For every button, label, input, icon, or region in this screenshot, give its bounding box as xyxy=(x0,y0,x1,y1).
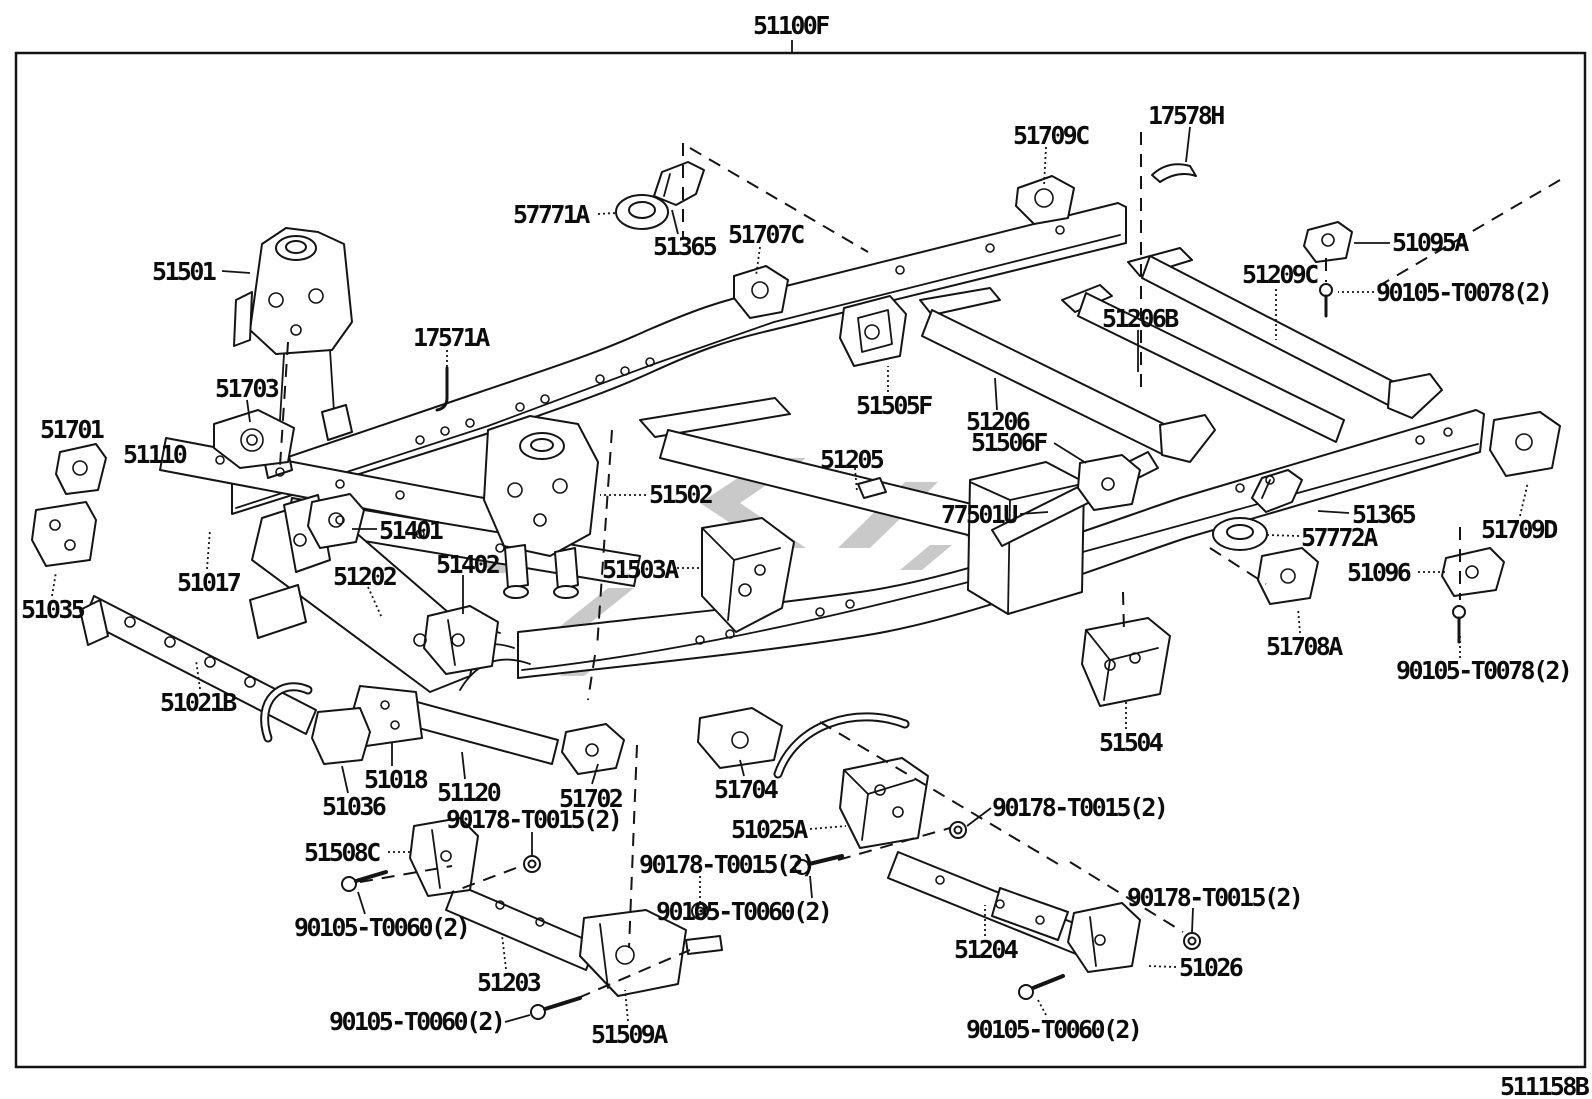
bracket-51506F xyxy=(1078,455,1140,510)
nut-90178-3 xyxy=(950,822,966,838)
part-label-51505F-12: 51505F xyxy=(856,393,931,418)
plate-51036 xyxy=(312,708,370,764)
part-label-51365-3: 51365 xyxy=(653,234,715,259)
bracket-51096 xyxy=(1442,548,1504,596)
part-label-51503A-26: 51503A xyxy=(602,557,677,582)
clip-51365-top xyxy=(654,162,704,205)
part-label-51704-37: 51704 xyxy=(714,777,776,802)
crossmember-box-end xyxy=(968,462,1084,614)
bracket-51504 xyxy=(1082,618,1170,706)
part-label-77501U-20: 77501U xyxy=(941,502,1016,527)
part-label-17571A-10: 17571A xyxy=(413,325,488,350)
bracket-51035 xyxy=(32,502,96,566)
part-label-51120-35: 51120 xyxy=(437,780,499,805)
part-label-51021B-32: 51021B xyxy=(160,690,235,715)
part-label-51401-19: 51401 xyxy=(379,518,441,543)
bracket-51708A xyxy=(1258,548,1318,604)
grommet-57771A xyxy=(616,195,668,229)
part-label-51026-48: 51026 xyxy=(1179,955,1241,980)
part-label-51502-18: 51502 xyxy=(649,482,711,507)
part-label-51017-24: 51017 xyxy=(177,570,239,595)
part-label-51203-49: 51203 xyxy=(477,970,539,995)
bracket-51025A xyxy=(840,758,928,848)
bolt-90105-T0060-br xyxy=(1019,985,1033,999)
part-label-90105-T00602-46: 90105-T0060(2) xyxy=(294,915,468,940)
part-label-90105-T00782-7: 90105-T0078(2) xyxy=(1376,280,1550,305)
hook-17578H xyxy=(1152,164,1196,182)
rod-17571A xyxy=(437,368,447,410)
part-label-90178-T00152-41: 90178-T0015(2) xyxy=(992,795,1166,820)
part-label-51096-27: 51096 xyxy=(1347,560,1409,585)
bracket-51702 xyxy=(562,724,624,774)
part-label-51018-34: 51018 xyxy=(364,767,426,792)
part-label-51703-11: 51703 xyxy=(215,376,277,401)
bracket-51701 xyxy=(56,444,106,494)
part-label-90105-T00602-44: 90105-T0060(2) xyxy=(656,899,830,924)
part-label-51202-29: 51202 xyxy=(333,564,395,589)
grommet-57772A xyxy=(1213,518,1267,550)
part-label-51025A-40: 51025A xyxy=(731,817,806,842)
bracket-51505F xyxy=(840,296,906,366)
part-label-90105-T00782-31: 90105-T0078(2) xyxy=(1396,658,1570,683)
part-label-51036-38: 51036 xyxy=(322,794,384,819)
part-label-51508C-42: 51508C xyxy=(304,840,379,865)
parts-diagram-page: 51100F 17578H51709C57771A5136551707C5109… xyxy=(0,0,1592,1099)
part-label-51204-47: 51204 xyxy=(954,937,1016,962)
part-label-51205-17: 51205 xyxy=(820,447,882,472)
sheet-code: 511158B xyxy=(1500,1074,1587,1099)
assembly-number: 51100F xyxy=(753,13,828,38)
part-label-90105-T00602-52: 90105-T0060(2) xyxy=(966,1017,1140,1042)
part-label-90178-T00152-39: 90178-T0015(2) xyxy=(446,807,620,832)
part-label-51504-33: 51504 xyxy=(1099,730,1161,755)
part-label-51095A-5: 51095A xyxy=(1392,230,1467,255)
bracket-51704 xyxy=(698,708,782,768)
bolt-90105-T0078-top xyxy=(1320,284,1332,296)
bolt-90105-T0060-bl xyxy=(531,1005,545,1019)
part-label-57772A-23: 57772A xyxy=(1301,525,1376,550)
part-label-51506F-14: 51506F xyxy=(971,430,1046,455)
part-label-51110-16: 51110 xyxy=(123,442,185,467)
bolt-90105-T0078-bottom xyxy=(1453,606,1465,618)
part-label-90178-T00152-43: 90178-T0015(2) xyxy=(639,852,813,877)
part-label-51035-28: 51035 xyxy=(21,597,83,622)
part-label-51509A-51: 51509A xyxy=(591,1022,666,1047)
part-label-51709C-1: 51709C xyxy=(1013,123,1088,148)
nut-90178-4 xyxy=(1184,933,1200,949)
part-label-57771A-2: 57771A xyxy=(513,202,588,227)
part-label-51206B-8: 51206B xyxy=(1102,306,1177,331)
nut-90178-1 xyxy=(524,856,540,872)
part-label-51209C-6: 51209C xyxy=(1242,262,1317,287)
part-label-90178-T00152-45: 90178-T0015(2) xyxy=(1127,885,1301,910)
part-label-90105-T00602-50: 90105-T0060(2) xyxy=(329,1009,503,1034)
part-label-51708A-30: 51708A xyxy=(1266,634,1341,659)
bracket-51709D xyxy=(1490,412,1560,476)
part-label-51709D-22: 51709D xyxy=(1481,517,1556,542)
part-label-51701-15: 51701 xyxy=(40,417,102,442)
part-label-17578H-0: 17578H xyxy=(1148,103,1223,128)
part-label-51402-25: 51402 xyxy=(436,552,498,577)
bolt-90105-T0060-l xyxy=(342,877,356,891)
part-label-51501-9: 51501 xyxy=(152,259,214,284)
crossmember-51203 xyxy=(446,884,596,970)
bracket-51095A xyxy=(1304,222,1352,262)
crossmember-51205-flange xyxy=(640,398,790,437)
part-label-51707C-4: 51707C xyxy=(728,222,803,247)
